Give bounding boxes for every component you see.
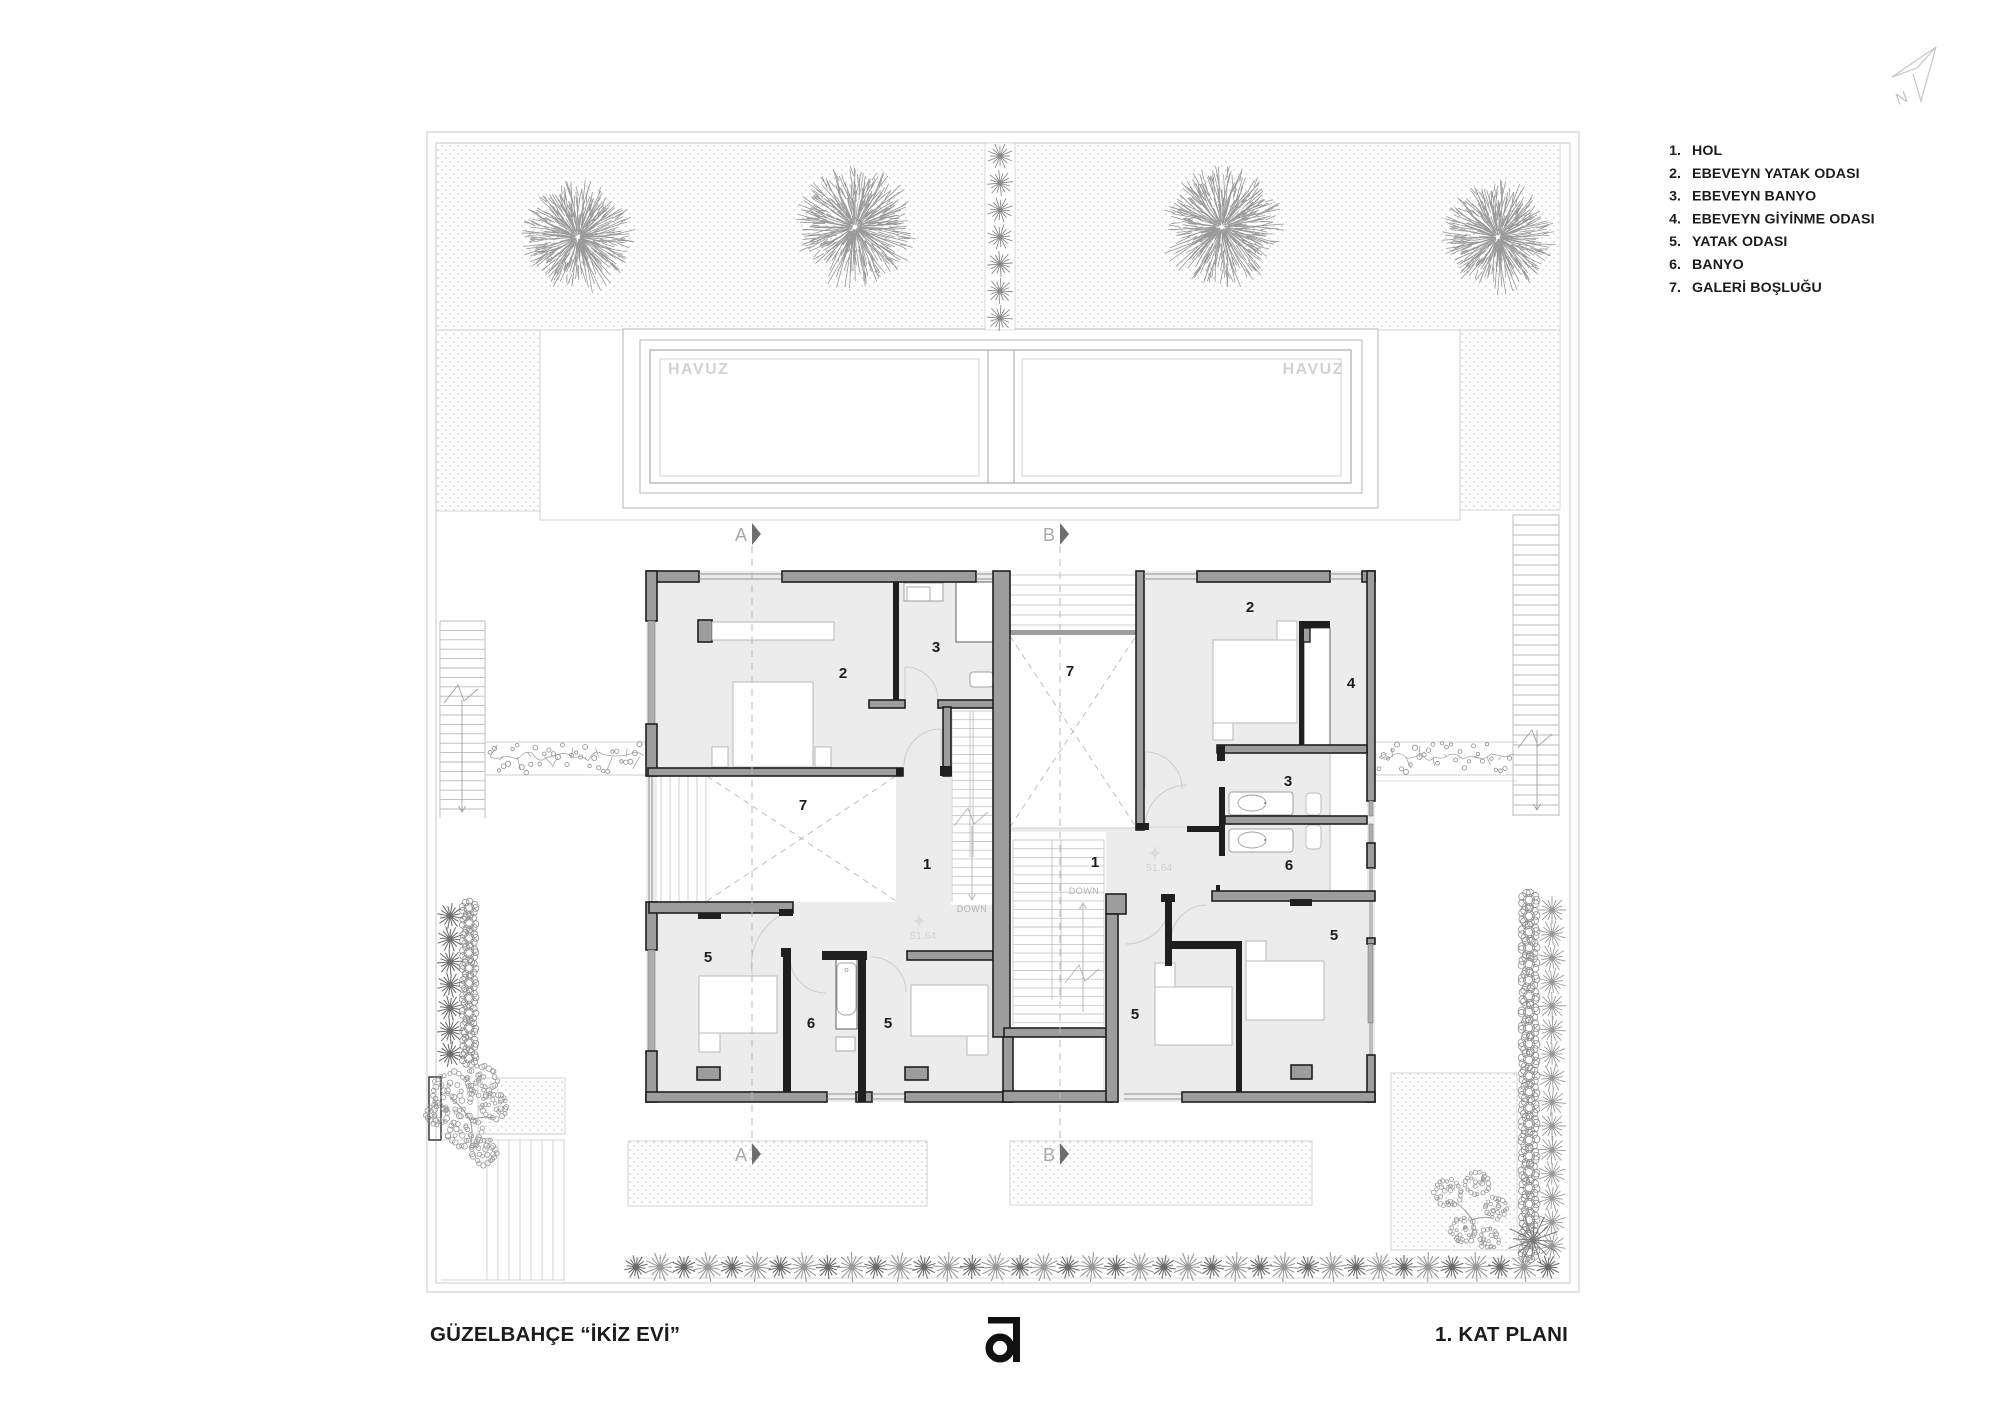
svg-text:6.: 6. — [1669, 257, 1681, 273]
svg-text:B: B — [1043, 1145, 1055, 1165]
svg-text:DOWN: DOWN — [957, 904, 988, 914]
svg-text:2: 2 — [839, 665, 847, 682]
svg-text:EBEVEYN YATAK ODASI: EBEVEYN YATAK ODASI — [1692, 166, 1860, 182]
svg-text:51.64: 51.64 — [1146, 862, 1172, 874]
svg-text:4: 4 — [1347, 675, 1356, 692]
svg-text:51.64: 51.64 — [910, 930, 936, 942]
svg-text:A: A — [735, 1145, 747, 1165]
svg-text:B: B — [1043, 525, 1055, 545]
svg-text:3: 3 — [1284, 773, 1292, 790]
svg-text:5: 5 — [884, 1015, 892, 1032]
svg-text:5: 5 — [1131, 1006, 1139, 1023]
svg-text:5: 5 — [1330, 927, 1338, 944]
svg-text:EBEVEYN BANYO: EBEVEYN BANYO — [1692, 189, 1816, 205]
svg-text:GÜZELBAHÇE “İKİZ EVİ”: GÜZELBAHÇE “İKİZ EVİ” — [430, 1323, 680, 1346]
svg-text:YATAK ODASI: YATAK ODASI — [1692, 234, 1787, 250]
svg-text:HOL: HOL — [1692, 143, 1722, 159]
svg-text:GALERİ BOŞLUĞU: GALERİ BOŞLUĞU — [1692, 278, 1822, 296]
svg-text:DOWN: DOWN — [1069, 886, 1100, 896]
svg-text:3: 3 — [932, 639, 940, 656]
svg-text:2.: 2. — [1669, 166, 1681, 182]
svg-text:6: 6 — [1285, 857, 1293, 874]
svg-text:7: 7 — [1066, 663, 1074, 680]
svg-text:3.: 3. — [1669, 189, 1681, 205]
svg-text:A: A — [735, 525, 747, 545]
svg-text:HAVUZ: HAVUZ — [668, 361, 729, 378]
svg-text:1. KAT PLANI: 1. KAT PLANI — [1435, 1323, 1568, 1346]
svg-text:EBEVEYN GİYİNME ODASI: EBEVEYN GİYİNME ODASI — [1692, 210, 1875, 227]
svg-text:1: 1 — [1091, 854, 1099, 871]
svg-text:1.: 1. — [1669, 143, 1681, 159]
svg-text:5: 5 — [704, 949, 712, 966]
svg-text:7: 7 — [799, 797, 807, 814]
svg-text:5.: 5. — [1669, 234, 1681, 250]
svg-text:7.: 7. — [1669, 280, 1681, 296]
svg-text:HAVUZ: HAVUZ — [1283, 361, 1344, 378]
svg-text:1: 1 — [923, 856, 931, 873]
svg-text:6: 6 — [807, 1015, 815, 1032]
svg-text:4.: 4. — [1669, 211, 1681, 227]
svg-text:2: 2 — [1246, 599, 1254, 616]
svg-text:BANYO: BANYO — [1692, 257, 1744, 273]
